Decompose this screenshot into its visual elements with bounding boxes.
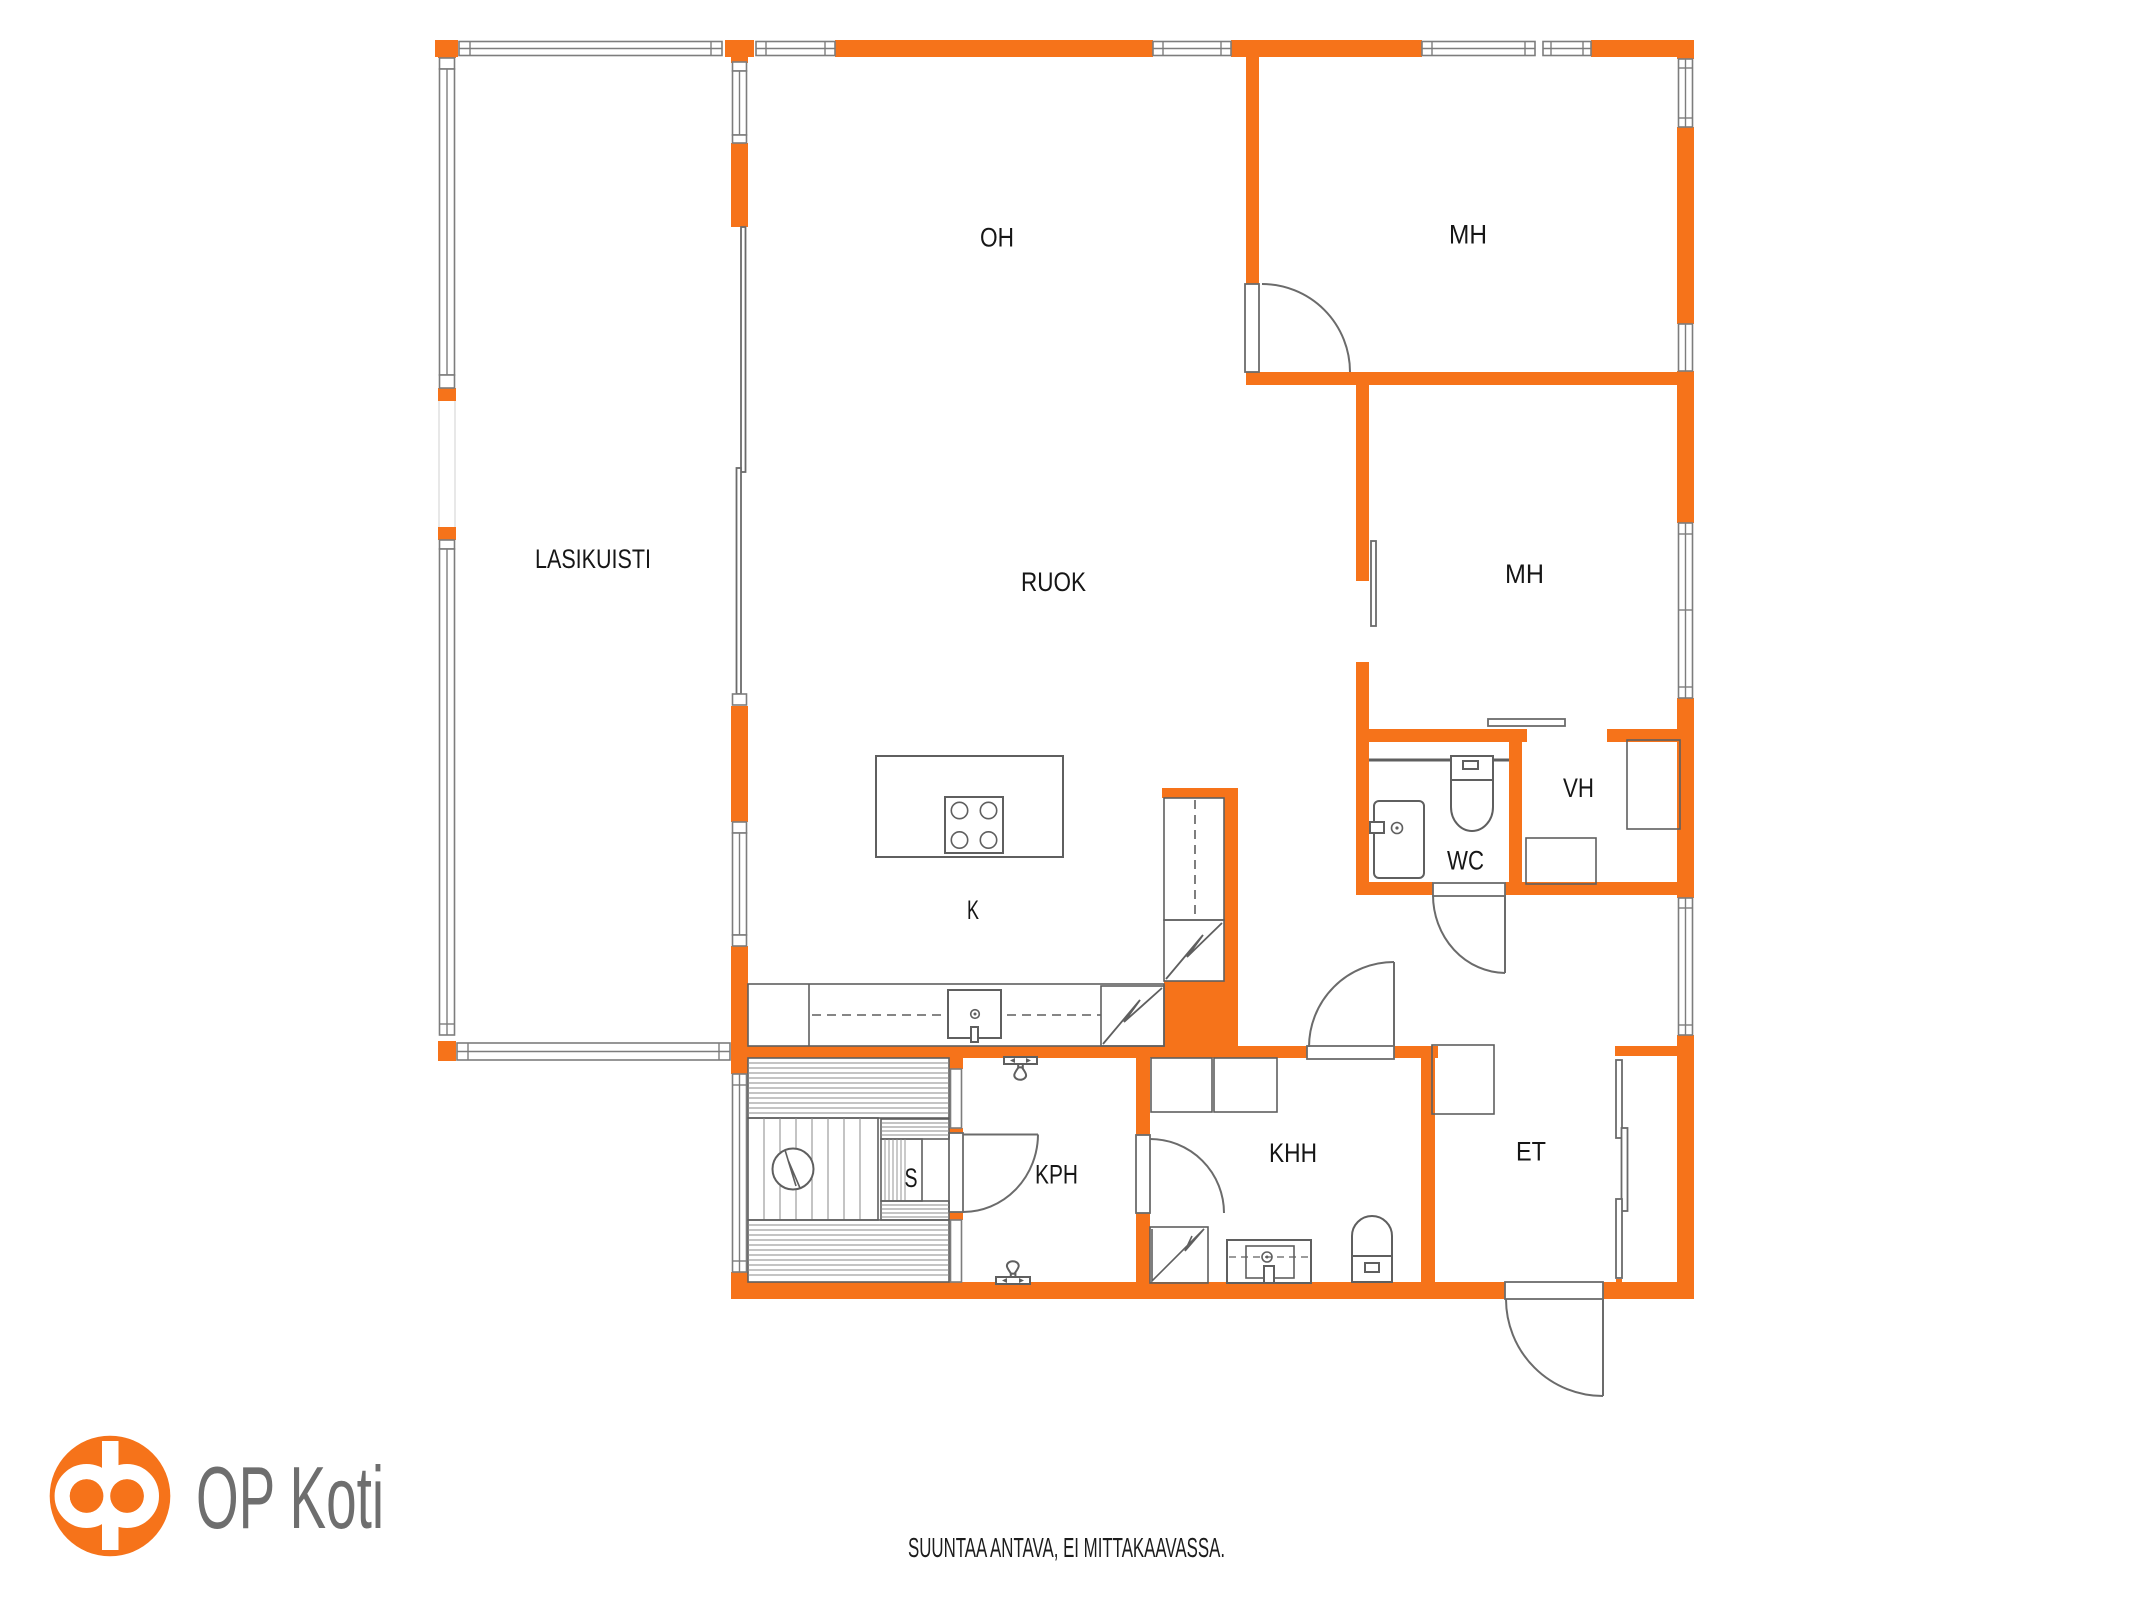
- svg-text:KHH: KHH: [1269, 1138, 1317, 1168]
- svg-text:VH: VH: [1563, 773, 1594, 803]
- svg-text:KPH: KPH: [1035, 1160, 1078, 1190]
- svg-text:LASIKUISTI: LASIKUISTI: [535, 544, 651, 574]
- svg-text:OH: OH: [980, 223, 1014, 253]
- svg-text:MH: MH: [1449, 220, 1487, 250]
- svg-text:MH: MH: [1505, 559, 1544, 589]
- svg-text:S: S: [905, 1163, 918, 1193]
- svg-text:WC: WC: [1447, 846, 1484, 876]
- svg-text:K: K: [967, 895, 979, 925]
- svg-text:ET: ET: [1516, 1137, 1546, 1167]
- svg-text:SUUNTAA ANTAVA, EI MITTAKAAVAS: SUUNTAA ANTAVA, EI MITTAKAAVASSA.: [908, 1532, 1225, 1563]
- svg-text:RUOK: RUOK: [1021, 567, 1086, 597]
- svg-text:OP Koti: OP Koti: [196, 1448, 384, 1547]
